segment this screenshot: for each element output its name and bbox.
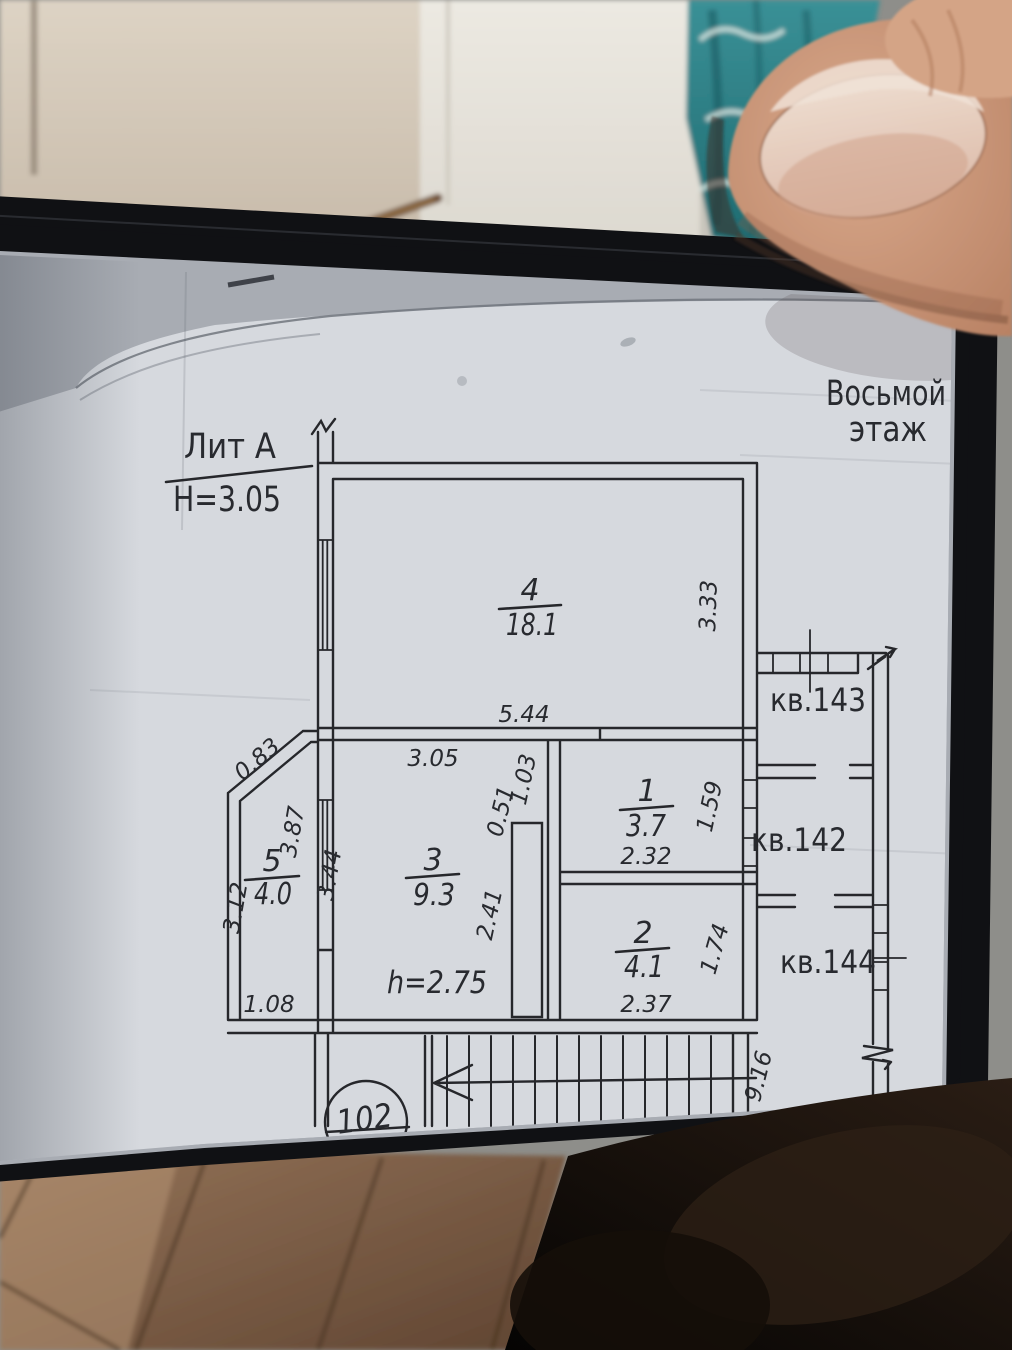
floor-height-label: Н=3.05: [173, 480, 281, 520]
room2-number-label: 2: [633, 916, 652, 951]
scanned-paper: [0, 300, 958, 1168]
room5-area-label: 4.0: [254, 877, 292, 912]
dim-3-33: 3.33: [695, 580, 723, 632]
apartment-143-label: кв.143: [770, 681, 866, 719]
apartment-142-label: кв.142: [751, 821, 847, 859]
floor-header-line2: этаж: [849, 410, 927, 450]
paper-speck: [457, 376, 467, 386]
dim-1-08: 1.08: [243, 992, 294, 1018]
left-vignette: [0, 250, 140, 1170]
ceiling-height-label: h=2.75: [387, 965, 487, 1001]
room4-area-label: 18.1: [506, 608, 558, 643]
screen-content: Восьмой этаж Лит А Н=3.05 4 18.1 1 3.7 2…: [0, 250, 1012, 1170]
dim-5-44: 5.44: [498, 702, 549, 728]
dim-2-37: 2.37: [620, 992, 672, 1018]
room1-number-label: 1: [637, 774, 656, 809]
dim-3-05: 3.05: [407, 746, 458, 772]
room3-number-label: 3: [423, 843, 442, 878]
dim-2-32: 2.32: [620, 844, 671, 870]
photo-of-phone-with-floorplan: Восьмой этаж Лит А Н=3.05 4 18.1 1 3.7 2…: [0, 0, 1012, 1350]
liter-label: Лит А: [184, 427, 276, 467]
room1-area-label: 3.7: [626, 809, 666, 844]
scene: Восьмой этаж Лит А Н=3.05 4 18.1 1 3.7 2…: [0, 0, 1012, 1350]
room4-number-label: 4: [520, 573, 539, 608]
room2-area-label: 4.1: [624, 950, 664, 985]
room3-area-label: 9.3: [413, 878, 455, 913]
floor-header-line1: Восьмой: [826, 374, 946, 414]
apartment-144-label: кв.144: [780, 943, 876, 981]
